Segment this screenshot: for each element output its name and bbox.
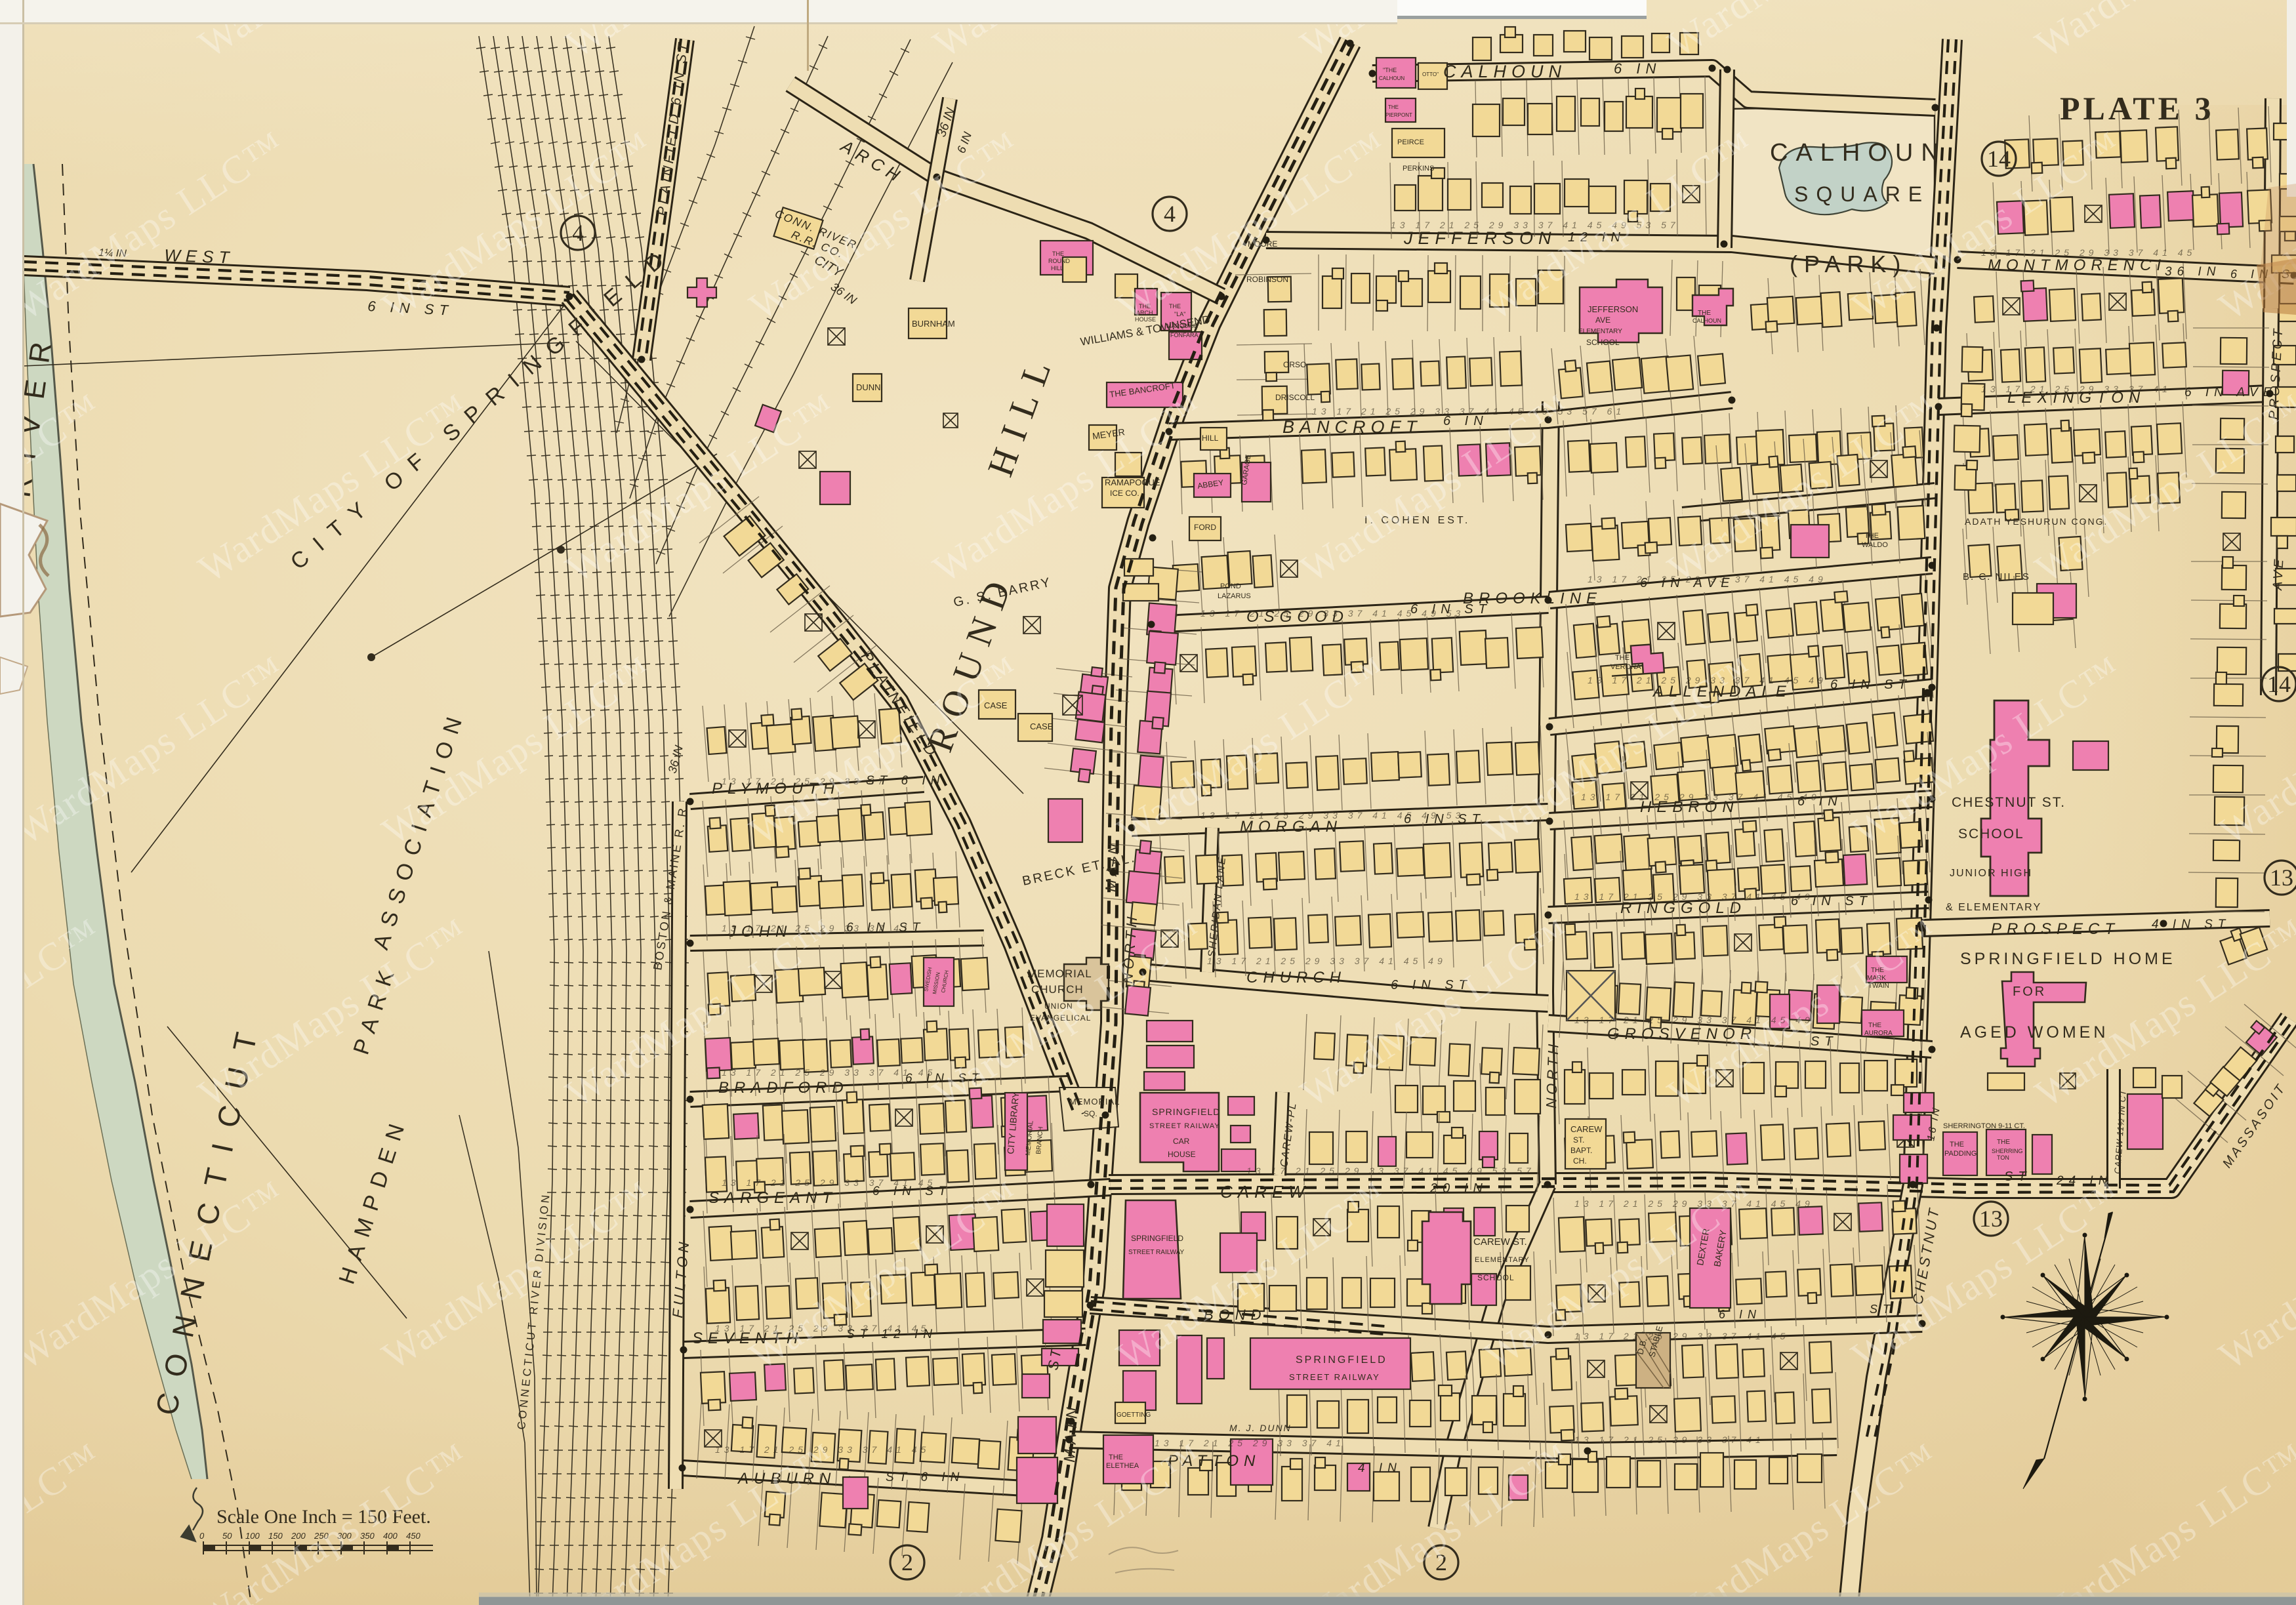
svg-text:GOETTING: GOETTING [1117,1412,1151,1419]
svg-text:ST.: ST. [1573,1135,1584,1145]
svg-text:FORD: FORD [1194,523,1216,532]
svg-text:BAPT.: BAPT. [1570,1146,1592,1155]
svg-text:ICE CO.: ICE CO. [1110,489,1139,498]
svg-text:4 IN: 4 IN [1358,1461,1402,1475]
svg-text:AVE: AVE [2270,556,2287,591]
svg-text:PLATE 3: PLATE 3 [2060,90,2215,127]
svg-text:6 IN: 6 IN [1614,60,1661,77]
svg-text:SPRINGFIELD: SPRINGFIELD [1131,1234,1183,1243]
svg-text:THE: THE [1109,1453,1123,1461]
svg-text:AVE: AVE [1595,315,1610,325]
svg-text:BANCROFT: BANCROFT [1282,417,1422,437]
svg-text:SQ.: SQ. [1084,1109,1097,1118]
svg-text:SCHOOL: SCHOOL [1958,826,2024,842]
svg-text:6 IN ST: 6 IN ST [1830,678,1912,692]
svg-text:SPRINGFIELD: SPRINGFIELD [1152,1107,1220,1117]
svg-text:ST 6 IN: ST 6 IN [886,1471,964,1484]
svg-text:CHURCH: CHURCH [1246,969,1346,986]
svg-text:13 17 21 25 29 33: 13 17 21 25 29 33 37 41 45 49 [1581,792,1820,802]
svg-text:"THE: "THE [1383,67,1397,73]
svg-text:OTTO": OTTO" [1422,71,1439,77]
svg-text:SHERRINGTON 9-11 CT.: SHERRINGTON 9-11 CT. [1943,1122,2025,1130]
svg-text:PIERPONT: PIERPONT [1385,112,1412,118]
svg-text:POND: POND [1220,582,1241,590]
svg-text:JUNIOR HIGH: JUNIOR HIGH [1950,868,2032,879]
svg-text:JEFFERSON: JEFFERSON [1588,304,1638,314]
svg-text:PADDING: PADDING [1944,1150,1977,1158]
svg-text:SPRINGFIELD HOME: SPRINGFIELD HOME [1960,950,2176,968]
svg-text:13 17 21 25 29 33: 13 17 21 25 29 33 37 41 45 49 53 57 61 [1312,406,1625,416]
svg-text:14: 14 [1987,146,2011,172]
svg-text:SCHOOL: SCHOOL [1477,1273,1515,1282]
svg-text:DRISCOLL: DRISCOLL [1275,393,1315,402]
svg-text:THE: THE [1950,1141,1964,1148]
svg-text:SARGEANT: SARGEANT [708,1189,837,1207]
svg-text:FOR: FOR [2013,985,2046,999]
svg-text:0: 0 [199,1531,205,1541]
svg-text:13 17 21 25 29 33: 13 17 21 25 29 33 37 41 [1574,1434,1765,1445]
svg-text:13 17 21 25 29 33: 13 17 21 25 29 33 37 41 45 49 53 [1200,608,1464,619]
svg-text:CALHOUN: CALHOUN [1770,139,1947,167]
svg-text:CALHOUN: CALHOUN [1692,317,1721,324]
svg-text:450: 450 [406,1531,420,1541]
svg-text:CASE: CASE [1030,721,1054,731]
svg-text:MAIN: MAIN [1061,1402,1082,1463]
svg-text:CH.: CH. [1573,1156,1587,1166]
svg-text:CAREW: CAREW [1570,1124,1603,1134]
svg-text:CALHOUN: CALHOUN [1443,62,1567,81]
svg-text:PROSPECT: PROSPECT [1991,920,2120,938]
svg-text:6 IN: 6 IN [1719,1308,1761,1321]
svg-text:THE: THE [1868,1022,1881,1029]
svg-text:ROBINSON: ROBINSON [1246,275,1288,284]
svg-text:STREET RAILWAY: STREET RAILWAY [1289,1372,1380,1382]
svg-text:CAREW: CAREW [1220,1182,1310,1202]
svg-text:BRADFORD: BRADFORD [718,1079,849,1097]
svg-text:AGED WOMEN: AGED WOMEN [1960,1023,2108,1042]
svg-text:VERONA: VERONA [1610,663,1641,671]
svg-text:20 IN: 20 IN [1429,1181,1488,1196]
svg-text:THE: THE [1388,104,1399,110]
svg-text:PEIRCE: PEIRCE [1397,138,1424,146]
svg-text:THE: THE [1052,251,1064,257]
svg-text:& ELEMENTARY: & ELEMENTARY [1946,902,2041,913]
svg-text:DUNN: DUNN [856,382,881,392]
svg-text:4: 4 [1164,201,1176,227]
svg-text:13: 13 [2270,864,2293,891]
svg-text:MARQUISE: MARQUISE [1166,323,1198,329]
svg-text:50: 50 [222,1531,232,1541]
svg-text:CAREW ST.: CAREW ST. [1473,1236,1527,1248]
svg-text:6 IN AVE: 6 IN AVE [2184,386,2276,399]
svg-text:MEMORIAL: MEMORIAL [1069,1097,1120,1107]
svg-text:400: 400 [383,1531,398,1541]
svg-text:TON: TON [1997,1154,2009,1161]
svg-text:CALHOUN: CALHOUN [1379,75,1404,81]
svg-text:SQUARE: SQUARE [1794,182,1930,206]
svg-text:HILL: HILL [1202,434,1219,443]
svg-text:13 17 21 25 29 33: 13 17 21 25 29 33 37 41 45 [722,1177,936,1188]
svg-text:HOUSE: HOUSE [1168,1150,1196,1159]
svg-text:M. J. DUNN: M. J. DUNN [1229,1423,1292,1433]
svg-text:ELEMENTARY: ELEMENTARY [1475,1256,1530,1264]
svg-text:13 17 21 25 29 33: 13 17 21 25 29 33 37 41 [1981,384,2171,394]
svg-text:13 17 21 25 29 33: 13 17 21 25 29 33 37 41 45 49 [1207,956,1446,966]
svg-text:SHERRING: SHERRING [1992,1148,2023,1154]
svg-text:MONTMORENCI: MONTMORENCI [1988,256,2166,274]
svg-text:WALDO: WALDO [1862,541,1888,549]
svg-text:THE: THE [1698,310,1711,317]
svg-text:THE: THE [1615,654,1630,662]
svg-text:13 17 21 25 29 33: 13 17 21 25 29 33 37 41 45 49 53 57 [1246,1166,1535,1176]
svg-text:SCHOOL: SCHOOL [1586,338,1620,347]
svg-text:BURNHAM: BURNHAM [912,319,955,329]
svg-text:AURORA: AURORA [1864,1030,1893,1037]
svg-text:ST: ST [1811,1034,1838,1049]
svg-text:THE: THE [1997,1139,2010,1146]
svg-text:ROUND: ROUND [1048,258,1070,264]
svg-text:B. C. NILES: B. C. NILES [1963,571,2030,582]
svg-text:FONFARA: FONFARA [1170,332,1199,338]
svg-text:150: 150 [268,1531,283,1541]
svg-text:ELEMENTARY: ELEMENTARY [1578,328,1622,335]
svg-text:WEST: WEST [164,245,235,268]
svg-text:LAZARUS: LAZARUS [1218,592,1251,600]
svg-text:SPRINGFIELD: SPRINGFIELD [1296,1354,1387,1366]
svg-text:14: 14 [2267,671,2291,697]
svg-text:MORGAN: MORGAN [1240,818,1342,836]
svg-text:PERKINS: PERKINS [1403,165,1434,173]
svg-text:13 17 21 25 29 33: 13 17 21 25 29 33 37 41 45 [1574,1331,1789,1341]
svg-text:13 17 21 25 29 33: 13 17 21 25 29 33 37 41 45 [722,1067,936,1078]
svg-text:13: 13 [1979,1206,2003,1232]
svg-text:JEFFERSON: JEFFERSON [1403,228,1557,248]
svg-text:ST: ST [2004,1169,2032,1184]
svg-text:RINGGOLD: RINGGOLD [1620,899,1746,917]
svg-text:ORSO: ORSO [1283,360,1306,369]
svg-text:NORTH: NORTH [1543,1041,1562,1109]
svg-text:CHESTNUT ST.: CHESTNUT ST. [1952,795,2066,810]
svg-text:36 IN: 36 IN [2165,265,2221,279]
svg-text:"LA": "LA" [1174,311,1185,317]
svg-text:STREET RAILWAY: STREET RAILWAY [1149,1122,1220,1130]
svg-text:THE: THE [1864,532,1879,540]
svg-text:STREET RAILWAY: STREET RAILWAY [1128,1249,1185,1256]
svg-text:100: 100 [245,1531,260,1541]
svg-text:THE: THE [1169,303,1181,310]
svg-text:13 17 21 25 29 33: 13 17 21 25 29 33 37 41 45 [1981,247,2196,258]
svg-text:CAR: CAR [1173,1137,1190,1146]
svg-text:4: 4 [572,220,584,246]
svg-text:13 17 21 25 29 33: 13 17 21 25 29 33 37 41 45 49 53 [1200,810,1464,821]
svg-text:HILL: HILL [1051,265,1063,272]
svg-text:13 17 21 25 29 33: 13 17 21 25 29 33 37 41 45 49 [1574,891,1814,902]
svg-text:2: 2 [901,1549,913,1575]
